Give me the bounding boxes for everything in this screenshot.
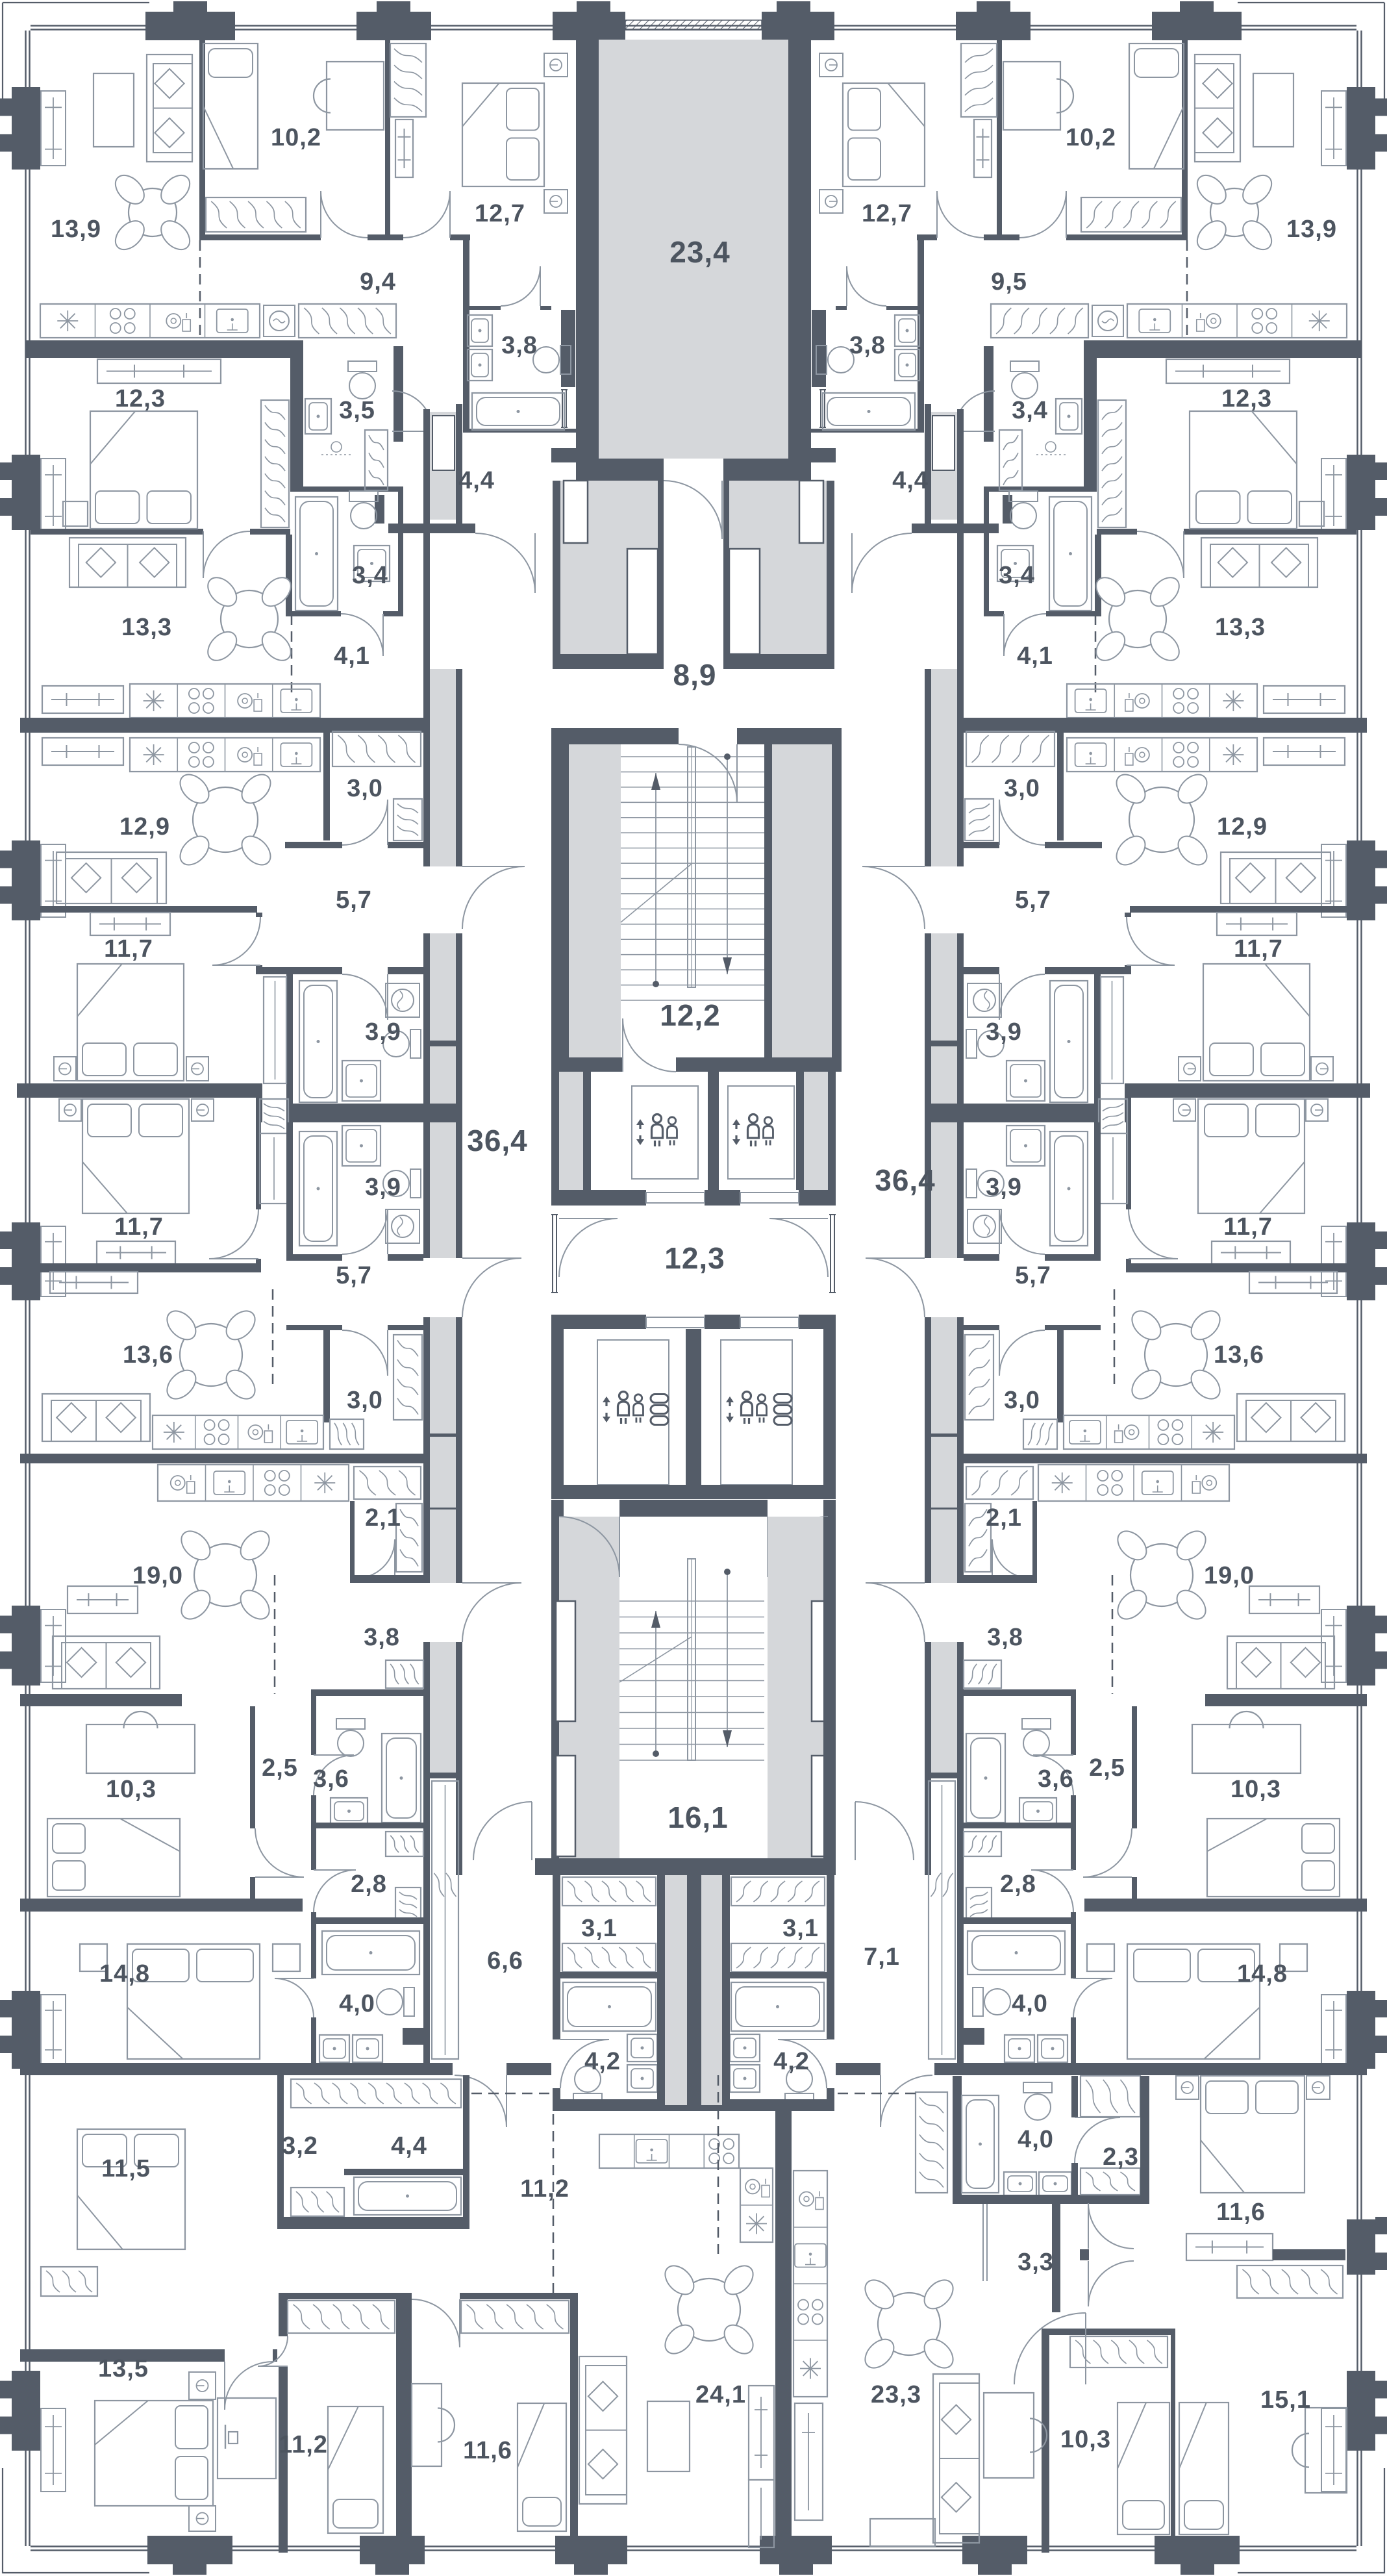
svg-text:11,7: 11,7 — [114, 1213, 164, 1241]
svg-text:3,0: 3,0 — [347, 1387, 383, 1414]
svg-text:10,2: 10,2 — [271, 124, 321, 151]
svg-text:23,3: 23,3 — [871, 2381, 921, 2408]
svg-text:4,1: 4,1 — [334, 642, 370, 670]
svg-text:3,9: 3,9 — [365, 1018, 401, 1046]
svg-text:3,2: 3,2 — [282, 2132, 318, 2160]
svg-text:11,2: 11,2 — [279, 2431, 328, 2458]
svg-text:2,3: 2,3 — [1103, 2143, 1139, 2171]
svg-text:5,7: 5,7 — [1015, 887, 1051, 914]
svg-text:11,5: 11,5 — [101, 2155, 151, 2182]
svg-text:2,5: 2,5 — [1089, 1754, 1125, 1782]
svg-text:2,5: 2,5 — [262, 1754, 298, 1782]
svg-text:24,1: 24,1 — [695, 2381, 746, 2408]
svg-text:13,9: 13,9 — [1286, 216, 1337, 243]
svg-text:5,7: 5,7 — [1015, 1262, 1051, 1289]
svg-text:4,2: 4,2 — [773, 2048, 810, 2075]
svg-text:3,8: 3,8 — [364, 1624, 400, 1651]
svg-text:12,9: 12,9 — [1217, 813, 1268, 840]
svg-text:4,0: 4,0 — [339, 1990, 375, 2017]
svg-text:4,0: 4,0 — [1012, 1990, 1048, 2017]
svg-text:3,0: 3,0 — [347, 775, 383, 802]
svg-text:11,7: 11,7 — [104, 935, 153, 963]
svg-text:3,4: 3,4 — [999, 562, 1035, 589]
svg-text:4,4: 4,4 — [391, 2132, 427, 2160]
svg-text:3,9: 3,9 — [986, 1174, 1022, 1201]
svg-text:10,3: 10,3 — [106, 1776, 156, 1803]
svg-text:12,3: 12,3 — [664, 1241, 725, 1275]
svg-text:11,7: 11,7 — [1223, 1213, 1273, 1241]
svg-text:36,4: 36,4 — [875, 1163, 936, 1197]
svg-text:4,4: 4,4 — [892, 467, 929, 494]
svg-text:4,2: 4,2 — [584, 2048, 621, 2075]
svg-text:3,8: 3,8 — [987, 1624, 1023, 1651]
svg-text:3,1: 3,1 — [782, 1915, 819, 1942]
svg-text:6,6: 6,6 — [487, 1947, 523, 1975]
svg-text:3,3: 3,3 — [1018, 2249, 1054, 2276]
svg-text:13,6: 13,6 — [1214, 1341, 1264, 1369]
svg-text:10,3: 10,3 — [1060, 2426, 1111, 2453]
svg-text:3,1: 3,1 — [581, 1915, 618, 1942]
svg-text:14,8: 14,8 — [99, 1960, 150, 1988]
svg-text:19,0: 19,0 — [1204, 1562, 1255, 1589]
svg-text:2,8: 2,8 — [351, 1871, 387, 1898]
svg-text:16,1: 16,1 — [668, 1800, 729, 1834]
svg-text:13,3: 13,3 — [1215, 614, 1266, 641]
svg-text:3,8: 3,8 — [501, 332, 538, 359]
svg-text:12,2: 12,2 — [660, 998, 721, 1032]
svg-text:12,9: 12,9 — [119, 813, 170, 840]
svg-text:36,4: 36,4 — [467, 1124, 528, 1157]
svg-text:2,1: 2,1 — [365, 1504, 401, 1532]
svg-text:3,6: 3,6 — [1038, 1765, 1074, 1793]
svg-text:13,3: 13,3 — [121, 614, 172, 641]
svg-text:14,8: 14,8 — [1237, 1960, 1288, 1988]
svg-text:3,8: 3,8 — [849, 332, 886, 359]
svg-text:4,1: 4,1 — [1017, 642, 1053, 670]
svg-text:13,6: 13,6 — [123, 1341, 173, 1369]
svg-text:2,1: 2,1 — [986, 1504, 1022, 1532]
svg-text:12,7: 12,7 — [475, 200, 525, 227]
svg-text:12,3: 12,3 — [1221, 385, 1272, 412]
svg-text:12,3: 12,3 — [115, 385, 166, 412]
svg-text:9,5: 9,5 — [991, 268, 1027, 296]
svg-text:3,6: 3,6 — [313, 1765, 349, 1793]
svg-text:23,4: 23,4 — [669, 235, 731, 269]
svg-text:3,4: 3,4 — [352, 562, 388, 589]
svg-text:5,7: 5,7 — [336, 887, 372, 914]
svg-text:3,4: 3,4 — [1012, 397, 1048, 424]
svg-text:7,1: 7,1 — [864, 1943, 900, 1971]
svg-text:11,7: 11,7 — [1234, 935, 1283, 963]
svg-text:3,5: 3,5 — [339, 397, 375, 424]
svg-text:5,7: 5,7 — [336, 1262, 372, 1289]
svg-text:3,9: 3,9 — [365, 1174, 401, 1201]
svg-text:11,6: 11,6 — [1216, 2199, 1266, 2226]
svg-text:4,0: 4,0 — [1018, 2126, 1054, 2153]
svg-text:11,2: 11,2 — [520, 2175, 569, 2203]
svg-text:12,7: 12,7 — [862, 200, 912, 227]
svg-text:19,0: 19,0 — [132, 1562, 183, 1589]
svg-text:13,5: 13,5 — [98, 2355, 149, 2382]
svg-text:8,9: 8,9 — [673, 658, 717, 692]
svg-text:10,3: 10,3 — [1231, 1776, 1281, 1803]
svg-text:3,9: 3,9 — [986, 1018, 1022, 1046]
svg-text:15,1: 15,1 — [1260, 2386, 1311, 2414]
svg-text:3,0: 3,0 — [1004, 1387, 1040, 1414]
svg-text:4,4: 4,4 — [458, 467, 495, 494]
svg-text:2,8: 2,8 — [1000, 1871, 1036, 1898]
svg-text:13,9: 13,9 — [51, 216, 101, 243]
svg-text:9,4: 9,4 — [360, 268, 396, 296]
svg-text:10,2: 10,2 — [1066, 124, 1116, 151]
svg-text:3,0: 3,0 — [1004, 775, 1040, 802]
svg-text:11,6: 11,6 — [463, 2437, 512, 2464]
